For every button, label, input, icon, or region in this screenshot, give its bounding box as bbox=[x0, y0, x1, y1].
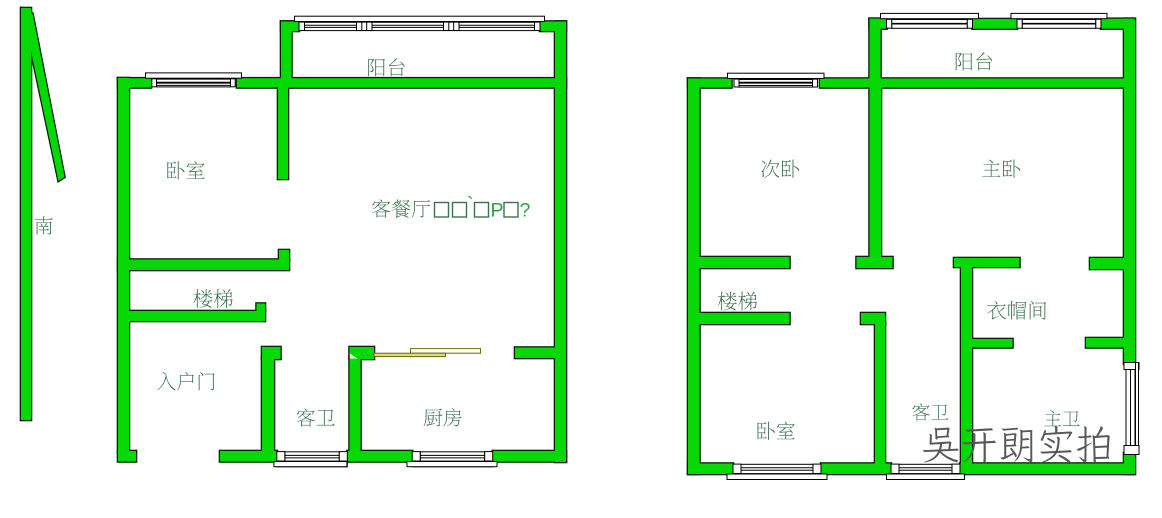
svg-text:?: ? bbox=[520, 200, 531, 222]
svg-text:`: ` bbox=[467, 194, 474, 216]
svg-text:P: P bbox=[491, 200, 504, 222]
